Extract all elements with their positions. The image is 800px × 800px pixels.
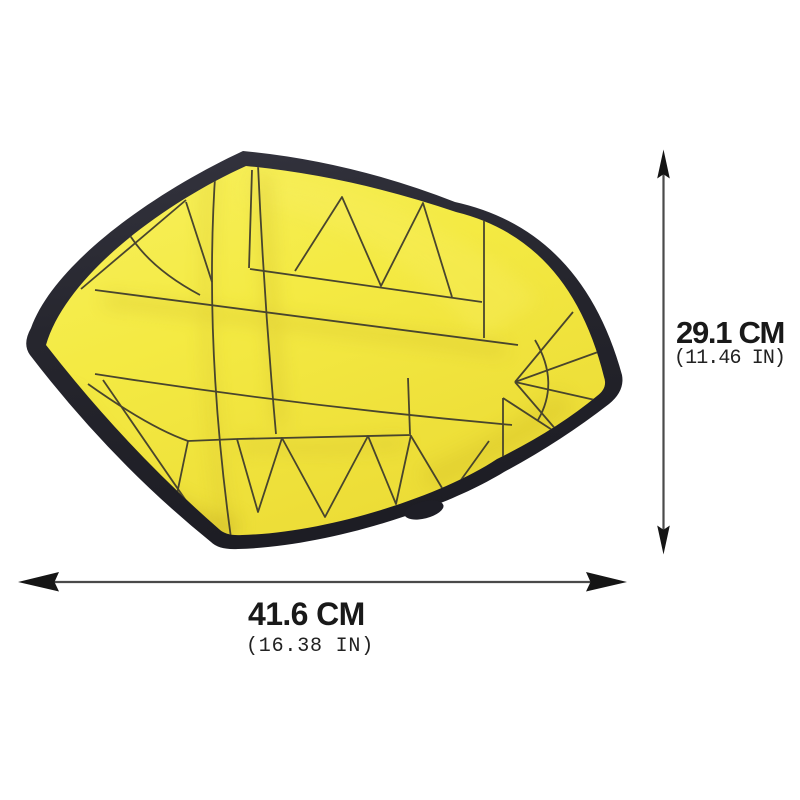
- svg-text:41.6 CM: 41.6 CM: [248, 596, 365, 632]
- svg-text:29.1 CM: 29.1 CM: [676, 315, 784, 350]
- svg-text:(11.46 IN): (11.46 IN): [674, 347, 785, 370]
- svg-text:(16.38 IN): (16.38 IN): [246, 635, 374, 658]
